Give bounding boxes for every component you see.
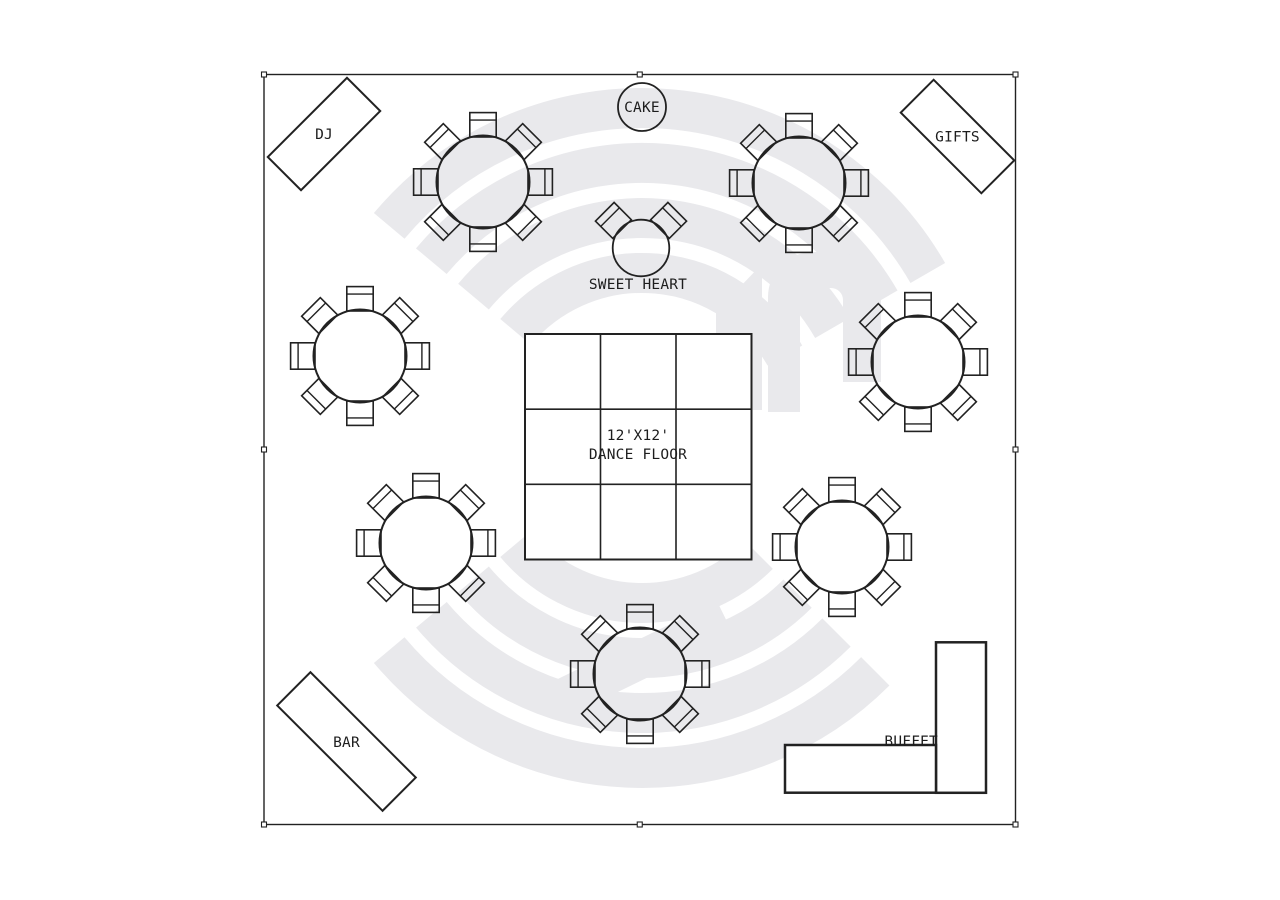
floor-plan-canvas: DJ GIFTS CAKE SWEET HEART 12'X12' DANCE … (0, 0, 1280, 900)
chair[interactable] (368, 485, 404, 521)
sweetheart-label: SWEET HEART (589, 277, 687, 293)
boundary-handle[interactable] (262, 72, 267, 77)
chair[interactable] (382, 378, 418, 414)
boundary-handle[interactable] (637, 72, 642, 77)
chair[interactable] (413, 474, 439, 498)
buffet-table[interactable] (936, 642, 986, 793)
cake-label: CAKE (624, 100, 660, 116)
chair[interactable] (905, 407, 931, 431)
gifts-label: GIFTS (935, 130, 980, 146)
chair[interactable] (940, 304, 976, 340)
dance-floor-label-line2: DANCE FLOOR (589, 447, 687, 463)
buffet-label: BUFFET (884, 734, 938, 750)
chair[interactable] (784, 489, 820, 525)
chair[interactable] (448, 485, 484, 521)
chair[interactable] (905, 293, 931, 317)
chair[interactable] (864, 569, 900, 605)
chair[interactable] (357, 530, 381, 556)
chair[interactable] (940, 384, 976, 420)
chair[interactable] (887, 534, 911, 560)
boundary-handle[interactable] (1013, 447, 1018, 452)
chair[interactable] (773, 534, 797, 560)
boundary-handle[interactable] (637, 822, 642, 827)
chair[interactable] (864, 489, 900, 525)
chair[interactable] (368, 565, 404, 601)
chair[interactable] (405, 343, 429, 369)
chair[interactable] (302, 298, 338, 334)
chair[interactable] (860, 384, 896, 420)
chair[interactable] (347, 287, 373, 311)
dj-label: DJ (315, 127, 333, 143)
chair[interactable] (471, 530, 495, 556)
boundary-handle[interactable] (1013, 822, 1018, 827)
chair[interactable] (347, 401, 373, 425)
boundary-handle[interactable] (1013, 72, 1018, 77)
boundary-handle[interactable] (262, 447, 267, 452)
chair[interactable] (382, 298, 418, 334)
buffet-table[interactable] (785, 745, 936, 793)
chair[interactable] (413, 588, 439, 612)
chair[interactable] (291, 343, 315, 369)
guest-table-5[interactable] (357, 474, 496, 613)
chair[interactable] (302, 378, 338, 414)
boundary-handle[interactable] (262, 822, 267, 827)
chair[interactable] (963, 349, 987, 375)
bar-label: BAR (333, 735, 360, 751)
guest-table-3[interactable] (291, 287, 430, 426)
chair[interactable] (829, 478, 855, 502)
chair[interactable] (829, 592, 855, 616)
dance-floor-label-line1: 12'X12' (607, 428, 670, 444)
guest-table-6[interactable] (773, 478, 912, 617)
